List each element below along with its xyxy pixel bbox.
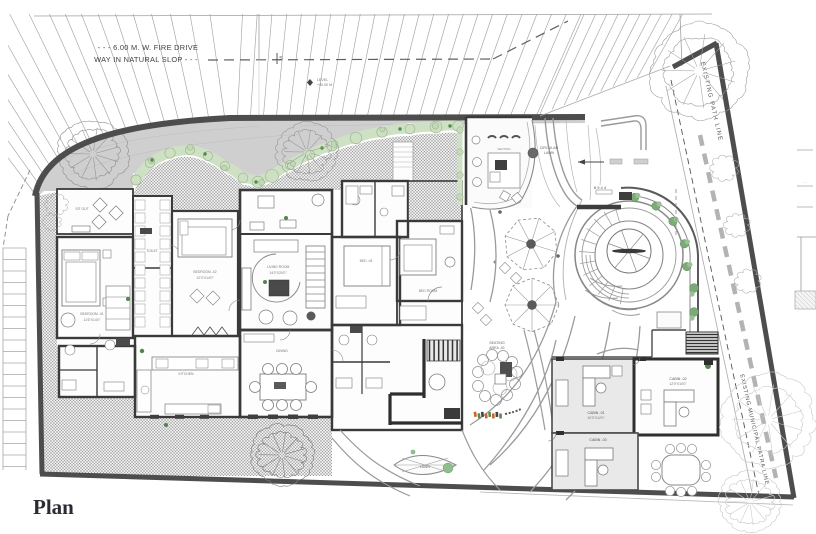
svg-text:· SEATING ·: · SEATING ·: [496, 147, 513, 151]
svg-text:+90.00 M: +90.00 M: [317, 83, 332, 87]
svg-text:WAY IN NATURAL SLOP - - -: WAY IN NATURAL SLOP - - -: [94, 55, 198, 64]
svg-text:12'0"X14'0": 12'0"X14'0": [196, 276, 214, 280]
svg-text:LEVEL: LEVEL: [317, 78, 328, 82]
svg-text:8 9 4 4: 8 9 4 4: [594, 185, 607, 190]
svg-text:LAWN: LAWN: [420, 465, 430, 469]
svg-text:Plan: Plan: [33, 495, 74, 519]
svg-text:BED ROOM: BED ROOM: [419, 289, 438, 293]
svg-text:· · ·: · · ·: [803, 181, 808, 185]
svg-text:S: S: [279, 56, 283, 62]
svg-text:12'0"X10'0": 12'0"X10'0": [669, 382, 687, 386]
svg-text:KITCHEN: KITCHEN: [179, 372, 194, 376]
svg-text:BEDROOM -02: BEDROOM -02: [193, 270, 216, 274]
svg-text:CABIN -03: CABIN -03: [589, 438, 606, 442]
svg-text:TOILET: TOILET: [146, 249, 158, 253]
svg-text:- - - 6.00 M. W. FIRE DRIVE: - - - 6.00 M. W. FIRE DRIVE: [98, 43, 199, 52]
svg-text:BEDROOM -01: BEDROOM -01: [80, 312, 103, 316]
svg-text:CIRCULAR: CIRCULAR: [540, 146, 559, 150]
svg-text:LIVING ROOM: LIVING ROOM: [267, 265, 290, 269]
svg-text:SIT OUT: SIT OUT: [75, 207, 88, 211]
svg-text:AREA -01: AREA -01: [489, 346, 505, 350]
svg-text:SEATING: SEATING: [489, 341, 505, 345]
svg-text:DINING: DINING: [276, 349, 288, 353]
svg-text:CABIN -02: CABIN -02: [669, 377, 686, 381]
svg-text:11'6"X14'0": 11'6"X14'0": [83, 318, 101, 322]
svg-text:14'0"X20'0": 14'0"X20'0": [269, 271, 287, 275]
svg-text:BED -04: BED -04: [360, 259, 373, 263]
svg-text:LAWN: LAWN: [544, 151, 555, 155]
svg-text:10'0"X12'0": 10'0"X12'0": [587, 416, 605, 420]
svg-text:CABIN -01: CABIN -01: [587, 411, 604, 415]
